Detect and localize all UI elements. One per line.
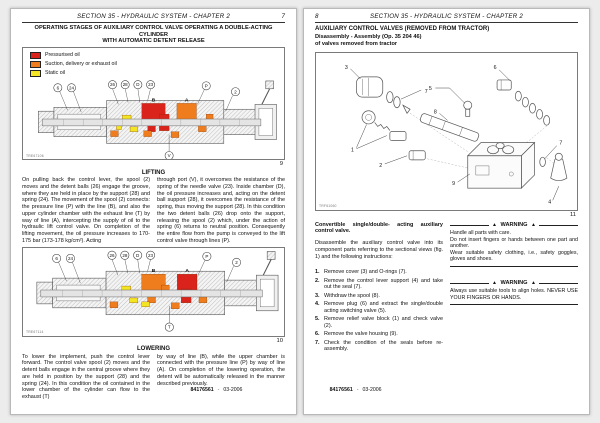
- rule-line: [539, 225, 578, 226]
- lowering-text: To lower the implement, push the control…: [22, 354, 285, 401]
- left-doc-title: OPERATING STAGES OF AUXILIARY CONTROL VA…: [22, 25, 285, 45]
- callout-8: 8: [434, 109, 437, 115]
- left-doc-title-line1: OPERATING STAGES OF AUXILIARY CONTROL VA…: [22, 25, 285, 38]
- callout-23: 23: [146, 80, 154, 88]
- revision-date: 03-2006: [362, 387, 381, 393]
- svg-text:P: P: [205, 83, 208, 88]
- plug: [497, 80, 511, 90]
- rule-line: [450, 283, 489, 284]
- warning-1-body: Handle all parts with care. Do not inser…: [450, 230, 578, 267]
- spool: [41, 290, 262, 297]
- legend-item-pressurised: Pressurised oil: [30, 52, 284, 60]
- callout-23: 23: [146, 251, 154, 259]
- callout-6: 6: [494, 64, 497, 70]
- figure-10-frame: 6 24 26 28 D 23 P 2 T B A TRE67114: [22, 247, 285, 337]
- svg-text:26: 26: [109, 252, 115, 257]
- step-2: 2.Remove the control lever support (4) a…: [315, 278, 443, 291]
- step-3: 3.Withdraw the spool (8).: [315, 293, 443, 300]
- right-page-number: 8: [315, 13, 329, 20]
- lifting-heading: LIFTING: [22, 170, 285, 176]
- warning-triangle-icon: ▲: [492, 281, 497, 286]
- callout-7: 7: [425, 89, 428, 95]
- legend-item-suction: Suction, delivery or exhaust oil: [30, 61, 284, 69]
- manual-spread: SECTION 35 - HYDRAULIC SYSTEM - CHAPTER …: [0, 0, 600, 423]
- callout-2: 2: [232, 258, 240, 266]
- port-label-A: A: [185, 97, 189, 103]
- callout-4: 4: [548, 199, 551, 205]
- disassembly-intro: Disassemble the auxiliary control valve …: [315, 240, 443, 260]
- operation-subtitle: Disassembly - Assembly (Op. 35 204 46) o…: [315, 34, 578, 48]
- right-page-header: 8 SECTION 35 - HYDRAULIC SYSTEM - CHAPTE…: [315, 13, 578, 23]
- step-7: 7.Check the condition of the seals befor…: [315, 340, 443, 353]
- figure-10-number: 10: [22, 338, 283, 344]
- warning-triangle-icon: ▲: [531, 281, 536, 286]
- callout-T: T: [165, 323, 173, 331]
- legend-label: Pressurised oil: [45, 52, 80, 58]
- figure-9-ref-code: TRE67106: [26, 154, 44, 158]
- warning-triangle-icon: ▲: [492, 223, 497, 228]
- svg-text:28: 28: [122, 252, 128, 257]
- check-valve: [409, 150, 425, 159]
- exploded-view-drawing: 3 5 6 7 8 1 2 9 7 4: [316, 53, 577, 208]
- svg-text:24: 24: [69, 85, 74, 90]
- right-header-title: SECTION 35 - HYDRAULIC SYSTEM - CHAPTER …: [329, 13, 564, 20]
- callout-26: 26: [108, 251, 116, 259]
- figure-11-number: 11: [315, 212, 576, 218]
- page-right: 8 SECTION 35 - HYDRAULIC SYSTEM - CHAPTE…: [303, 8, 590, 415]
- seal-ring: [529, 103, 535, 113]
- callout-7b: 7: [559, 140, 562, 146]
- step-6: 6.Remove the valve housing (9).: [315, 331, 443, 338]
- callout-5: 5: [429, 86, 432, 92]
- warnings-column: ▲ WARNING ▲ Handle all parts with care. …: [450, 222, 578, 355]
- figure-11-ref-code: TRF61060: [319, 204, 337, 208]
- callout-6: 6: [52, 254, 60, 262]
- seal-ring: [544, 115, 550, 125]
- legend-item-static: Static oil: [30, 70, 284, 78]
- port-label-B: B: [152, 97, 156, 103]
- callout-1: 1: [351, 147, 354, 153]
- revision-date: 03-2006: [223, 387, 242, 393]
- port-label-B: B: [152, 268, 156, 274]
- spring: [375, 122, 390, 130]
- callout-D: D: [134, 80, 142, 88]
- left-header-title: SECTION 35 - HYDRAULIC SYSTEM - CHAPTER …: [36, 13, 271, 20]
- svg-text:23: 23: [148, 252, 154, 257]
- warning-triangle-icon: ▲: [531, 223, 536, 228]
- rule-line: [450, 225, 489, 226]
- callout-2: 2: [379, 163, 382, 169]
- right-page-footer: 84176561 - 03-2006: [330, 387, 382, 393]
- figure-10-ref-code: TRE67114: [26, 330, 44, 334]
- warning-2-title: WARNING: [500, 280, 527, 287]
- svg-text:23: 23: [148, 82, 153, 87]
- lever-support-top: [555, 153, 562, 160]
- callout-28: 28: [121, 251, 129, 259]
- callout-3: 3: [345, 64, 348, 70]
- legend-label: Static oil: [45, 70, 65, 76]
- seal-ring: [515, 91, 521, 101]
- lifting-col2: through port (V), it overcomes the resis…: [157, 177, 285, 245]
- legend-swatch-red: [30, 52, 41, 60]
- page-left: SECTION 35 - HYDRAULIC SYSTEM - CHAPTER …: [10, 8, 297, 415]
- disassembly-steps: 1.Remove cover (3) and O-rings (7). 2.Re…: [315, 269, 443, 353]
- svg-text:P: P: [205, 254, 208, 259]
- convertible-valve-heading: Convertible single/double- acting auxili…: [315, 222, 443, 235]
- operation-subtitle-line1: Disassembly - Assembly (Op. 35 204 46): [315, 34, 578, 41]
- spool: [42, 119, 261, 126]
- warning-1-header: ▲ WARNING ▲: [450, 222, 578, 229]
- o-ring: [387, 91, 393, 102]
- disassembly-column: Convertible single/double- acting auxili…: [315, 222, 443, 355]
- seal-ring: [537, 109, 543, 119]
- svg-text:28: 28: [123, 82, 128, 87]
- step-4: 4.Remove plug (6) and extract the single…: [315, 301, 443, 314]
- svg-text:T: T: [168, 324, 171, 329]
- lifting-col1: On pulling back the control lever, the s…: [22, 177, 150, 245]
- callout-26: 26: [108, 80, 116, 88]
- step-5: 5.Remove relief valve block (1) and chec…: [315, 316, 443, 329]
- svg-text:V: V: [168, 153, 171, 158]
- callout-6: 6: [54, 83, 62, 91]
- legend-swatch-yellow: [30, 70, 41, 78]
- warning-box-1: ▲ WARNING ▲ Handle all parts with care. …: [450, 222, 578, 267]
- rule-line: [539, 283, 578, 284]
- document-code: 84176561: [330, 387, 353, 393]
- lowering-col1: To lower the implement, push the control…: [22, 354, 150, 401]
- right-doc-title: AUXILIARY CONTROL VALVES (REMOVED FROM T…: [315, 26, 578, 32]
- warning-2-body: Always use suitable tools to align holes…: [450, 288, 578, 305]
- valve-section-drawing-lifting: 6 24 26 28 D 23 P 2 V B A: [23, 79, 284, 161]
- operation-subtitle-line2: of valves removed from tractor: [315, 41, 578, 48]
- warning-box-2: ▲ WARNING ▲ Always use suitable tools to…: [450, 280, 578, 306]
- valve-housing: [468, 142, 535, 188]
- footer-separator: -: [218, 387, 220, 393]
- port-label-A: A: [185, 268, 189, 274]
- figure-9-frame: Pressurised oil Suction, delivery or exh…: [22, 47, 285, 160]
- callout-2: 2: [231, 87, 239, 95]
- warning-1-title: WARNING: [500, 222, 527, 229]
- right-page-columns: Convertible single/double- acting auxili…: [315, 222, 578, 355]
- callout-24: 24: [67, 83, 75, 91]
- callout-9: 9: [452, 181, 455, 187]
- callout-V: V: [165, 151, 173, 159]
- callout-P: P: [202, 81, 210, 89]
- left-page-header: SECTION 35 - HYDRAULIC SYSTEM - CHAPTER …: [22, 13, 285, 23]
- exploded-parts: [356, 77, 566, 188]
- oil-color-legend: Pressurised oil Suction, delivery or exh…: [23, 48, 284, 77]
- lifting-text: On pulling back the control lever, the s…: [22, 177, 285, 245]
- lowering-heading: LOWERING: [22, 346, 285, 352]
- svg-text:26: 26: [110, 82, 115, 87]
- cover-part: [356, 77, 382, 97]
- callout-D: D: [134, 251, 142, 259]
- document-code: 84176561: [191, 387, 214, 393]
- spool-part: [419, 112, 479, 141]
- figure-11-frame: 3 5 6 7 8 1 2 9 7 4 TRF61060: [315, 52, 578, 211]
- figure-9-number: 9: [22, 161, 283, 167]
- switching-valve: [464, 101, 472, 109]
- legend-swatch-orange: [30, 61, 41, 69]
- step-1: 1.Remove cover (3) and O-rings (7).: [315, 269, 443, 276]
- svg-text:24: 24: [68, 256, 74, 261]
- left-page-footer: 84176561 - 03-2006: [191, 387, 243, 393]
- left-doc-title-line2: WITH AUTOMATIC DETENT RELEASE: [22, 38, 285, 45]
- lowering-col2: by way of line (B), while the upper cham…: [157, 354, 285, 401]
- valve-section-drawing-lowering: 6 24 26 28 D 23 P 2 T B A: [23, 249, 284, 333]
- left-page-number: 7: [271, 13, 285, 20]
- callout-24: 24: [66, 254, 74, 262]
- o-ring: [394, 96, 400, 107]
- seal-ring: [522, 97, 528, 107]
- warning-2-header: ▲ WARNING ▲: [450, 280, 578, 287]
- footer-separator: -: [357, 387, 359, 393]
- relief-valve-body: [390, 131, 406, 140]
- callout-28: 28: [121, 80, 129, 88]
- legend-label: Suction, delivery or exhaust oil: [45, 61, 117, 67]
- callout-P: P: [203, 252, 211, 260]
